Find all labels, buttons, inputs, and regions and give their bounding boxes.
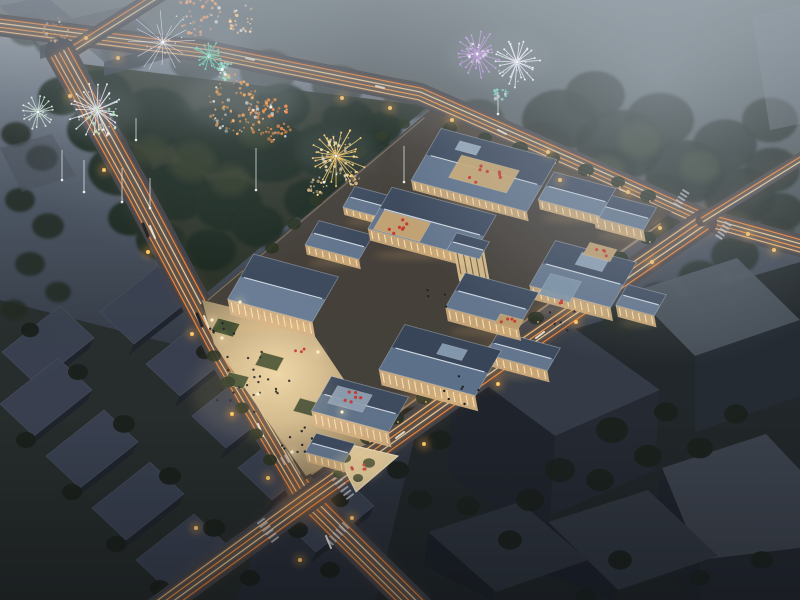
night-aerial-architectural-rendering [0,0,800,600]
vignette [0,0,800,600]
scene-canvas [0,0,800,600]
